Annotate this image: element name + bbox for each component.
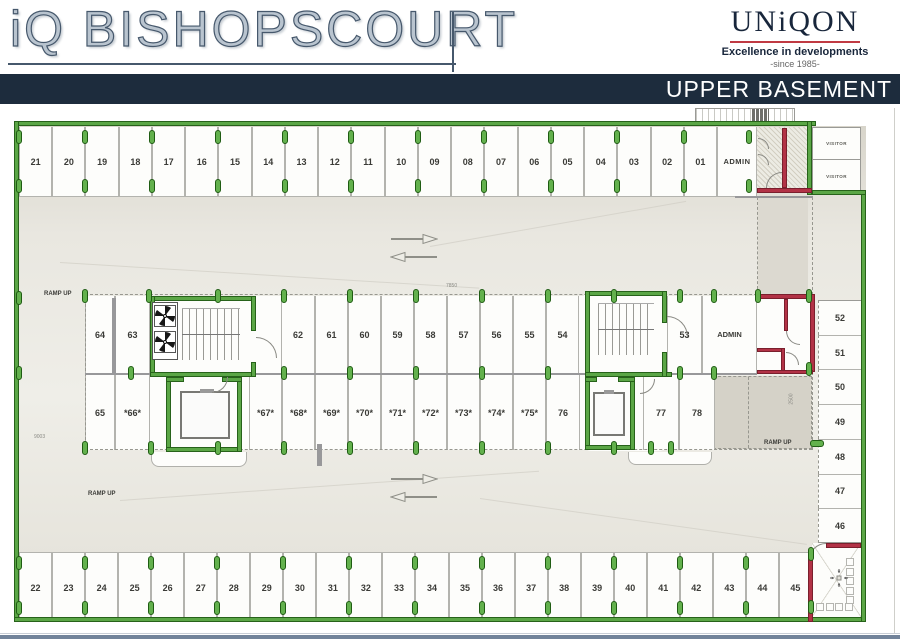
column-marker — [82, 130, 88, 144]
column-marker — [413, 366, 419, 380]
column-marker — [545, 366, 551, 380]
column-marker — [677, 601, 683, 615]
column-marker — [479, 289, 485, 303]
wall-red — [826, 543, 861, 548]
column-marker — [711, 289, 717, 303]
column-marker — [148, 601, 154, 615]
wall-green — [585, 291, 667, 296]
parking-stall: ADMIN — [702, 296, 757, 373]
parking-stall: 30 — [283, 552, 316, 622]
ramp-strip — [758, 198, 808, 294]
parking-stall: 15 — [218, 127, 251, 197]
wall-green — [630, 377, 635, 450]
block-outline — [85, 294, 812, 295]
parking-stall: 33 — [382, 552, 415, 622]
wall-green — [251, 362, 256, 377]
column-marker — [808, 547, 814, 561]
parking-stall: 18 — [119, 127, 152, 197]
parking-stall: 41 — [647, 552, 680, 622]
column-marker — [215, 130, 221, 144]
parking-stall: *74* — [480, 375, 513, 450]
column-marker — [413, 289, 419, 303]
column-marker — [347, 366, 353, 380]
column-marker — [346, 601, 352, 615]
ramp-up-label: RAMP UP — [764, 440, 792, 446]
column-marker — [348, 179, 354, 193]
wall-green — [14, 121, 816, 126]
niche-square — [845, 603, 853, 611]
wall-green — [150, 296, 256, 301]
wall-green — [812, 190, 866, 195]
parking-stall: 03 — [617, 127, 650, 197]
column-marker — [282, 130, 288, 144]
elevator-car — [593, 392, 625, 436]
parking-stall: 40 — [614, 552, 647, 622]
column-marker — [281, 441, 287, 455]
parking-stall: 25 — [118, 552, 151, 622]
page-edge-navy — [0, 635, 900, 639]
column-marker — [611, 289, 617, 303]
column-marker — [16, 366, 22, 380]
extract-fan-icon — [154, 305, 176, 327]
column-marker — [548, 130, 554, 144]
column-marker — [479, 366, 485, 380]
column-marker — [479, 556, 485, 570]
parking-stall: 38 — [548, 552, 581, 622]
column-marker — [413, 441, 419, 455]
column-marker — [215, 289, 221, 303]
column-marker — [481, 179, 487, 193]
column-marker — [82, 441, 88, 455]
wall-green — [251, 296, 256, 331]
column-marker — [614, 179, 620, 193]
column-marker — [677, 366, 683, 380]
column-marker — [16, 179, 22, 193]
parking-stall: 56 — [480, 296, 513, 373]
wall-green — [618, 377, 635, 382]
column-marker — [479, 441, 485, 455]
wall-green — [585, 377, 590, 450]
wall-green — [14, 617, 866, 622]
parking-stall: 37 — [515, 552, 548, 622]
column-marker — [146, 289, 152, 303]
column-marker — [648, 441, 654, 455]
column-marker — [128, 366, 134, 380]
column-marker — [681, 130, 687, 144]
parking-stall: 78 — [679, 375, 715, 450]
wall-green — [237, 377, 242, 452]
parking-stall: 60 — [348, 296, 381, 373]
parking-stall: 13 — [285, 127, 318, 197]
wall-gray — [112, 298, 116, 373]
wall-green — [585, 445, 635, 450]
column-marker — [412, 601, 418, 615]
column-marker — [149, 179, 155, 193]
wall-green — [807, 121, 812, 195]
parking-stall: *75* — [513, 375, 546, 450]
wall-green — [585, 377, 597, 382]
column-marker — [545, 556, 551, 570]
wall-green — [662, 352, 667, 377]
wall-red — [757, 188, 812, 193]
column-marker — [677, 289, 683, 303]
ramp-up-label: RAMP UP — [44, 291, 72, 297]
parking-stall: 26 — [151, 552, 184, 622]
traffic-arrow-right — [390, 472, 438, 484]
ramp-area — [713, 376, 812, 449]
parking-stall: *70* — [348, 375, 381, 450]
wall-gray — [317, 444, 322, 466]
column-marker — [282, 179, 288, 193]
parking-stall: 34 — [415, 552, 448, 622]
parking-stall: 12 — [318, 127, 351, 197]
column-marker — [214, 556, 220, 570]
parking-stall: 22 — [19, 552, 52, 622]
parking-stall: 36 — [482, 552, 515, 622]
column-marker — [668, 441, 674, 455]
column-marker — [545, 441, 551, 455]
niche-square — [835, 603, 843, 611]
level-title: UPPER BASEMENT — [666, 74, 892, 104]
column-marker — [281, 366, 287, 380]
parking-stall: *72* — [414, 375, 447, 450]
column-marker — [280, 601, 286, 615]
parking-stall: 27 — [184, 552, 217, 622]
ramp-divider — [748, 377, 749, 448]
niche-square — [846, 587, 854, 595]
wall-green — [585, 291, 590, 377]
parking-stall: 20 — [52, 127, 85, 197]
parking-stall: 05 — [551, 127, 584, 197]
column-marker — [755, 289, 761, 303]
parking-stall: 44 — [746, 552, 779, 622]
traffic-arrow-left — [390, 490, 438, 502]
parking-stall: 06 — [518, 127, 551, 197]
traffic-arrow-right — [390, 232, 438, 244]
column-marker — [82, 601, 88, 615]
parking-stall: 32 — [349, 552, 382, 622]
column-marker — [479, 601, 485, 615]
parking-stall: 45 — [779, 552, 812, 622]
parking-stall: *69* — [315, 375, 348, 450]
column-marker — [746, 130, 752, 144]
parking-stall: 35 — [449, 552, 482, 622]
column-marker — [215, 179, 221, 193]
parking-stall: 17 — [152, 127, 185, 197]
column-marker — [746, 179, 752, 193]
column-marker — [149, 130, 155, 144]
column-marker — [481, 130, 487, 144]
parking-stall: 48 — [818, 439, 861, 474]
column-marker — [348, 130, 354, 144]
parking-stall: 29 — [250, 552, 283, 622]
elevator-door — [604, 390, 614, 394]
ramp-up-label: RAMP UP — [88, 491, 116, 497]
parking-stall: 01 — [684, 127, 717, 197]
wall-green — [166, 377, 171, 452]
column-marker — [16, 130, 22, 144]
parking-stall: 23 — [52, 552, 85, 622]
column-marker — [810, 440, 824, 447]
dimension-label: 7850 — [446, 283, 457, 289]
column-marker — [614, 130, 620, 144]
parking-stall: 62 — [281, 296, 315, 373]
visitor-stall: VISITOR — [813, 160, 860, 192]
column-marker — [743, 556, 749, 570]
parking-stall: 39 — [581, 552, 614, 622]
dimension-label: 9003 — [34, 434, 45, 440]
column-marker — [806, 289, 812, 303]
parking-stall: 63 — [115, 296, 150, 373]
parking-stall: *68* — [282, 375, 315, 450]
parking-stall: 31 — [316, 552, 349, 622]
parking-stall: 65 — [85, 375, 115, 450]
parking-stall: 55 — [513, 296, 546, 373]
extract-fan-icon — [154, 331, 176, 353]
column-marker — [148, 556, 154, 570]
column-marker — [82, 289, 88, 303]
wall-green — [166, 377, 184, 382]
wall-red — [781, 348, 785, 372]
traffic-arrow-left — [390, 250, 438, 262]
parking-stall: 28 — [217, 552, 250, 622]
column-marker — [347, 441, 353, 455]
page-edge — [894, 108, 895, 634]
parking-stall: 57 — [447, 296, 480, 373]
block-outline — [757, 197, 758, 294]
column-marker — [808, 600, 814, 614]
column-marker — [806, 362, 812, 376]
page-edge — [0, 633, 900, 634]
block-outline — [85, 294, 86, 450]
parking-stall: 58 — [414, 296, 447, 373]
parking-stall: 21 — [19, 127, 52, 197]
wall-red — [757, 370, 813, 374]
wall-red — [782, 128, 787, 188]
column-marker — [347, 289, 353, 303]
column-marker — [743, 601, 749, 615]
column-marker — [611, 441, 617, 455]
center-marker-icon — [830, 569, 848, 587]
column-marker — [545, 601, 551, 615]
visitor-stall: VISITOR — [813, 128, 860, 160]
column-marker — [677, 556, 683, 570]
column-marker — [415, 130, 421, 144]
parking-stall: 61 — [315, 296, 348, 373]
parking-stall: *71* — [381, 375, 414, 450]
column-marker — [16, 601, 22, 615]
column-marker — [214, 601, 220, 615]
parking-stall: 51 — [818, 335, 861, 370]
column-marker — [82, 179, 88, 193]
parking-stall: 14 — [252, 127, 285, 197]
parking-stall: 52 — [818, 300, 861, 335]
parking-stall: 09 — [418, 127, 451, 197]
elevator-car — [180, 391, 230, 439]
wall-red — [810, 294, 815, 372]
wall-gray — [735, 196, 813, 198]
column-marker — [280, 556, 286, 570]
parking-stall: 76 — [546, 375, 580, 450]
parking-stall: 07 — [484, 127, 517, 197]
parking-stall: 04 — [584, 127, 617, 197]
column-marker — [611, 556, 617, 570]
column-marker — [281, 289, 287, 303]
parking-stall: 64 — [85, 296, 115, 373]
column-marker — [148, 441, 154, 455]
parking-stall: 46 — [818, 508, 861, 543]
parking-stall: 54 — [546, 296, 579, 373]
niche-square — [846, 558, 854, 566]
column-marker — [711, 366, 717, 380]
parking-stall: 47 — [818, 474, 861, 509]
parking-stall: 16 — [185, 127, 218, 197]
column-marker — [412, 556, 418, 570]
wall-green — [166, 447, 242, 452]
parking-stall: 19 — [85, 127, 118, 197]
column-marker — [16, 291, 22, 305]
parking-stall: 50 — [818, 369, 861, 404]
column-marker — [415, 179, 421, 193]
parking-stall: 02 — [651, 127, 684, 197]
parking-stall: 43 — [713, 552, 746, 622]
parking-stall: *67* — [249, 375, 282, 450]
parking-stall: 08 — [451, 127, 484, 197]
stair-centerline — [598, 329, 654, 330]
column-marker — [82, 556, 88, 570]
parking-stall: *66* — [115, 375, 150, 450]
column-marker — [16, 556, 22, 570]
wall-red — [784, 299, 788, 331]
dimension-label: 2500 — [789, 393, 795, 404]
niche-square — [816, 603, 824, 611]
stair-centerline — [182, 334, 240, 335]
parking-stall: 42 — [680, 552, 713, 622]
column-marker — [548, 179, 554, 193]
column-marker — [545, 289, 551, 303]
parking-stall: 11 — [351, 127, 384, 197]
column-marker — [346, 556, 352, 570]
parking-stall: 10 — [385, 127, 418, 197]
parking-stall: *73* — [447, 375, 480, 450]
column-marker — [681, 179, 687, 193]
wall-green — [861, 192, 866, 622]
niche-square — [826, 603, 834, 611]
parking-stall: 24 — [85, 552, 118, 622]
parking-stall: 59 — [381, 296, 414, 373]
column-marker — [611, 601, 617, 615]
parking-stall: 49 — [818, 404, 861, 439]
lobby-bump — [151, 452, 247, 467]
column-marker — [215, 441, 221, 455]
